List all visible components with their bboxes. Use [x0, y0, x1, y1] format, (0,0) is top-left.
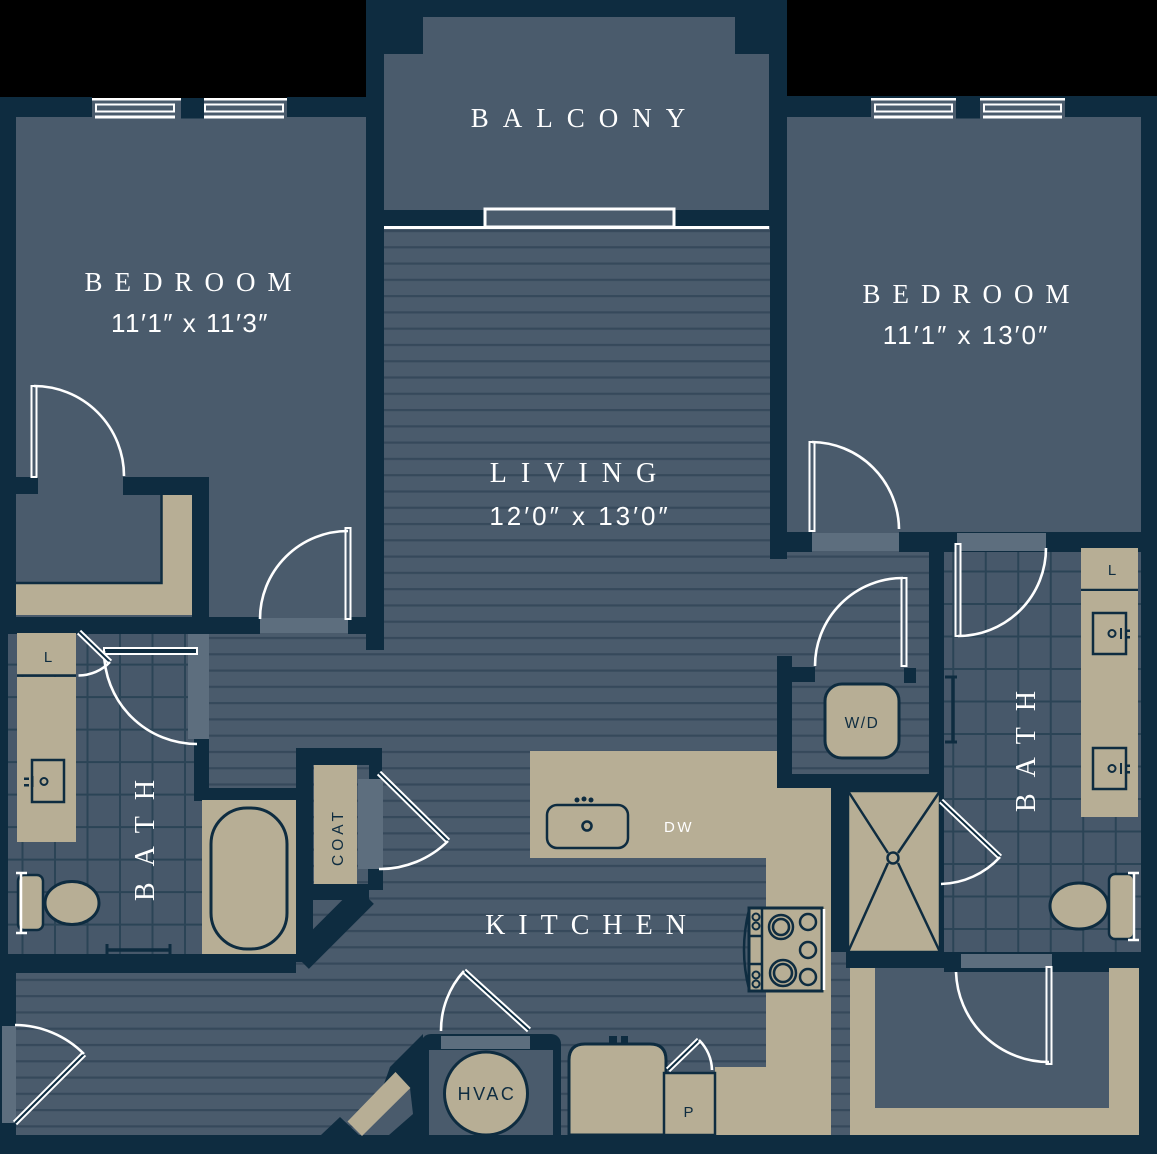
svg-text:W/D: W/D [845, 715, 880, 732]
svg-text:HVAC: HVAC [458, 1084, 517, 1104]
svg-text:11′1″ x 13′0″: 11′1″ x 13′0″ [883, 320, 1049, 350]
svg-text:BEDROOM: BEDROOM [862, 279, 1081, 309]
svg-text:KITCHEN: KITCHEN [485, 910, 699, 941]
svg-text:LIVING: LIVING [490, 458, 670, 489]
svg-text:BATH: BATH [1011, 675, 1042, 812]
svg-text:P: P [683, 1104, 694, 1121]
svg-text:L: L [1108, 562, 1116, 579]
svg-text:11′1″ x 11′3″: 11′1″ x 11′3″ [111, 308, 269, 338]
svg-text:COAT: COAT [330, 808, 347, 866]
svg-text:BALCONY: BALCONY [471, 103, 700, 133]
svg-text:DW: DW [664, 819, 694, 836]
svg-text:L: L [44, 649, 52, 666]
svg-text:BATH: BATH [130, 764, 161, 901]
svg-text:BEDROOM: BEDROOM [84, 267, 303, 297]
svg-text:12′0″ x 13′0″: 12′0″ x 13′0″ [489, 501, 670, 531]
